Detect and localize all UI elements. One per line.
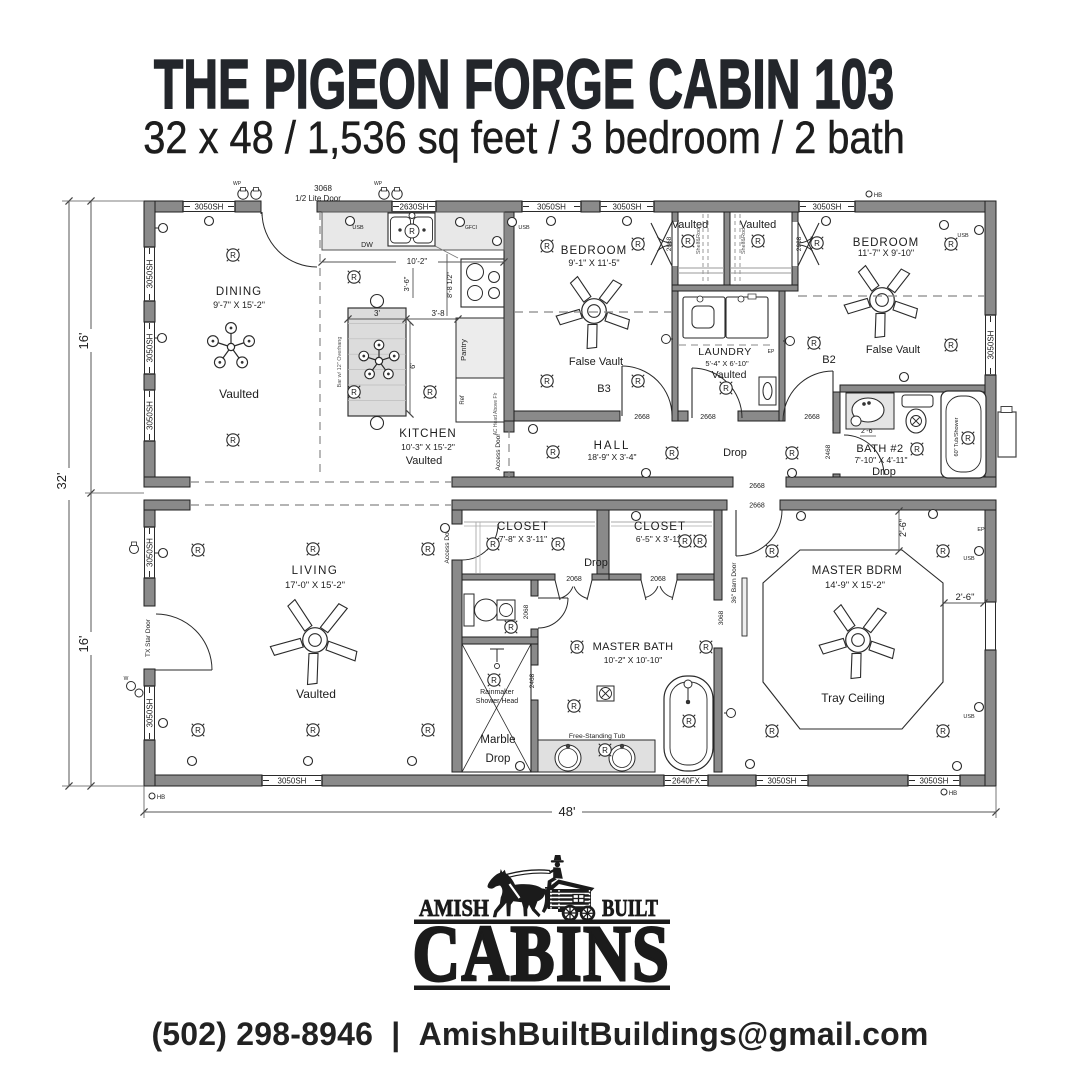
- svg-text:WP: WP: [233, 181, 242, 187]
- svg-text:BEDROOM: BEDROOM: [561, 245, 627, 257]
- svg-text:3050SH: 3050SH: [146, 401, 155, 430]
- svg-text:USB: USB: [957, 233, 969, 239]
- svg-text:W: W: [124, 676, 129, 682]
- svg-text:R: R: [814, 239, 820, 248]
- svg-text:R: R: [425, 545, 431, 554]
- svg-text:R: R: [574, 643, 580, 652]
- svg-text:R: R: [351, 388, 357, 397]
- svg-text:9'-7" X 15'-2": 9'-7" X 15'-2": [213, 300, 265, 310]
- svg-text:GFCI: GFCI: [465, 225, 477, 231]
- svg-text:R: R: [550, 448, 556, 457]
- svg-text:False Vault: False Vault: [569, 356, 623, 368]
- svg-text:Vaulted: Vaulted: [406, 455, 443, 467]
- svg-text:R: R: [602, 746, 608, 755]
- svg-text:60" Tub/Shower: 60" Tub/Shower: [954, 417, 960, 456]
- svg-text:2668: 2668: [700, 414, 716, 421]
- svg-text:Vaulted: Vaulted: [712, 369, 747, 381]
- svg-text:3050SH: 3050SH: [987, 330, 996, 359]
- svg-text:CLOSET: CLOSET: [634, 521, 686, 533]
- svg-text:3050SH: 3050SH: [195, 203, 224, 212]
- svg-text:2668: 2668: [666, 236, 673, 251]
- svg-text:LAUNDRY: LAUNDRY: [698, 346, 752, 358]
- svg-text:R: R: [755, 237, 761, 246]
- svg-text:R: R: [310, 545, 316, 554]
- svg-text:Ref: Ref: [460, 395, 466, 405]
- svg-text:2668: 2668: [634, 414, 650, 421]
- svg-text:CABINS: CABINS: [413, 909, 671, 997]
- svg-text:USB: USB: [518, 225, 530, 231]
- svg-text:Rainmaker: Rainmaker: [480, 689, 515, 696]
- svg-text:Pantry: Pantry: [459, 339, 468, 361]
- svg-text:10'-3" X 15'-2": 10'-3" X 15'-2": [401, 442, 455, 452]
- svg-text:USB: USB: [352, 225, 364, 231]
- svg-text:R: R: [230, 251, 236, 260]
- svg-text:7'-8" X 3'-11": 7'-8" X 3'-11": [499, 534, 547, 544]
- svg-text:Drop: Drop: [584, 557, 608, 569]
- svg-text:2668: 2668: [749, 483, 765, 490]
- svg-text:Drop: Drop: [723, 447, 747, 459]
- svg-text:32': 32': [54, 473, 69, 490]
- svg-text:Access Door: Access Door: [495, 433, 502, 471]
- svg-text:2668: 2668: [804, 414, 820, 421]
- svg-text:CLOSET: CLOSET: [497, 521, 549, 533]
- svg-text:R: R: [230, 436, 236, 445]
- svg-text:Marble: Marble: [480, 734, 515, 746]
- svg-text:R: R: [940, 727, 946, 736]
- svg-text:R: R: [544, 377, 550, 386]
- svg-text:USB: USB: [963, 714, 975, 720]
- svg-text:R: R: [914, 445, 920, 454]
- svg-text:R: R: [195, 546, 201, 555]
- svg-text:Tray Ceiling: Tray Ceiling: [821, 691, 885, 705]
- svg-text:2468: 2468: [529, 673, 536, 688]
- svg-text:3'-8: 3'-8: [431, 309, 445, 318]
- svg-text:R: R: [351, 273, 357, 282]
- svg-text:R: R: [682, 537, 688, 546]
- svg-text:Vaulted: Vaulted: [740, 219, 777, 231]
- svg-text:2468: 2468: [825, 444, 832, 459]
- svg-text:R: R: [703, 643, 709, 652]
- svg-text:HB: HB: [874, 193, 882, 199]
- svg-text:R: R: [769, 727, 775, 736]
- svg-text:9'-1" X 11'-5": 9'-1" X 11'-5": [568, 258, 619, 268]
- svg-text:LIVING: LIVING: [292, 565, 339, 577]
- svg-text:R: R: [635, 240, 641, 249]
- svg-text:3050SH: 3050SH: [768, 777, 797, 786]
- svg-text:1/2 Lite Door: 1/2 Lite Door: [295, 194, 341, 203]
- svg-text:False Vault: False Vault: [866, 344, 920, 356]
- svg-text:Shower Head: Shower Head: [476, 698, 519, 705]
- svg-text:2'-6": 2'-6": [898, 519, 908, 537]
- svg-text:R: R: [769, 547, 775, 556]
- svg-text:Vaulted: Vaulted: [219, 387, 259, 401]
- svg-text:2668: 2668: [749, 503, 765, 510]
- svg-text:5'-4" X 6'-10": 5'-4" X 6'-10": [705, 359, 749, 368]
- svg-text:AC Head Above Flr: AC Head Above Flr: [493, 392, 499, 435]
- svg-text:R: R: [491, 676, 497, 685]
- svg-text:8'-8 1/2": 8'-8 1/2": [447, 272, 454, 298]
- svg-text:Drop: Drop: [486, 753, 511, 765]
- svg-text:3050SH: 3050SH: [278, 777, 307, 786]
- svg-text:R: R: [697, 537, 703, 546]
- svg-text:R: R: [635, 377, 641, 386]
- svg-text:14'-9" X 15'-2": 14'-9" X 15'-2": [825, 580, 885, 591]
- svg-text:TX Star Door: TX Star Door: [145, 618, 152, 657]
- svg-text:HB: HB: [157, 795, 165, 801]
- svg-text:R: R: [544, 242, 550, 251]
- svg-text:3': 3': [374, 309, 380, 318]
- svg-text:R: R: [425, 726, 431, 735]
- svg-text:EP: EP: [977, 527, 985, 533]
- svg-text:HALL: HALL: [594, 440, 631, 452]
- svg-text:Shelf&Rod: Shelf&Rod: [741, 228, 747, 254]
- svg-text:R: R: [940, 547, 946, 556]
- svg-text:3050SH: 3050SH: [146, 333, 155, 362]
- svg-text:Free-Standing Tub: Free-Standing Tub: [569, 733, 626, 740]
- svg-text:B3: B3: [597, 383, 610, 395]
- svg-text:R: R: [965, 434, 971, 443]
- svg-text:R: R: [555, 540, 561, 549]
- svg-text:R: R: [948, 240, 954, 249]
- svg-text:Shelf&Rod: Shelf&Rod: [696, 228, 702, 254]
- svg-text:3050SH: 3050SH: [537, 203, 566, 212]
- svg-text:2630SH: 2630SH: [400, 203, 429, 212]
- svg-text:16': 16': [76, 333, 91, 350]
- svg-text:WP: WP: [374, 181, 383, 187]
- svg-text:R: R: [669, 449, 675, 458]
- svg-text:2640FX: 2640FX: [672, 777, 701, 786]
- svg-text:R: R: [571, 702, 577, 711]
- svg-text:11'-7" X 9'-10": 11'-7" X 9'-10": [858, 248, 914, 258]
- svg-text:7'-10" X 4'-11": 7'-10" X 4'-11": [854, 455, 907, 465]
- svg-text:USB: USB: [963, 556, 975, 562]
- svg-text:17'-0" X 15'-2": 17'-0" X 15'-2": [285, 580, 345, 591]
- svg-text:R: R: [789, 449, 795, 458]
- svg-text:DW: DW: [361, 242, 373, 249]
- svg-text:DINING: DINING: [216, 286, 262, 298]
- svg-text:Drop: Drop: [872, 466, 896, 478]
- svg-text:R: R: [686, 717, 692, 726]
- svg-text:BATH #2: BATH #2: [856, 443, 903, 455]
- svg-text:3050SH: 3050SH: [613, 203, 642, 212]
- svg-text:R: R: [195, 726, 201, 735]
- svg-text:16': 16': [76, 636, 91, 653]
- svg-text:R: R: [508, 623, 514, 632]
- svg-text:6'-5" X 3'-11": 6'-5" X 3'-11": [636, 534, 684, 544]
- svg-text:6': 6': [408, 363, 417, 369]
- svg-text:MASTER BATH: MASTER BATH: [593, 641, 674, 653]
- svg-text:Bar w/ 12" Overhang: Bar w/ 12" Overhang: [337, 337, 343, 388]
- svg-text:3'-6": 3'-6": [402, 276, 411, 291]
- svg-text:10'-2": 10'-2": [407, 257, 428, 266]
- svg-text:3050SH: 3050SH: [813, 203, 842, 212]
- svg-text:2'-6": 2'-6": [956, 592, 975, 603]
- svg-text:HB: HB: [949, 791, 957, 797]
- svg-text:Vaulted: Vaulted: [672, 219, 709, 231]
- svg-text:R: R: [490, 540, 496, 549]
- svg-text:3050SH: 3050SH: [146, 698, 155, 727]
- svg-text:3050SH: 3050SH: [920, 777, 949, 786]
- svg-text:B2: B2: [822, 354, 835, 366]
- svg-text:MASTER BDRM: MASTER BDRM: [812, 565, 902, 577]
- svg-text:3050SH: 3050SH: [146, 259, 155, 288]
- svg-text:R: R: [723, 384, 729, 393]
- svg-text:18'-9" X 3'-4": 18'-9" X 3'-4": [588, 452, 637, 462]
- svg-text:EP: EP: [768, 349, 775, 355]
- svg-text:3050SH: 3050SH: [146, 538, 155, 567]
- svg-text:R: R: [409, 227, 415, 236]
- svg-text:KITCHEN: KITCHEN: [399, 428, 456, 440]
- svg-text:2068: 2068: [650, 576, 666, 583]
- svg-text:3068: 3068: [718, 610, 725, 625]
- svg-text:2068: 2068: [523, 604, 530, 619]
- svg-text:48': 48': [559, 804, 576, 819]
- svg-text:R: R: [427, 388, 433, 397]
- svg-text:R: R: [310, 726, 316, 735]
- svg-text:36" Barn Door: 36" Barn Door: [731, 562, 738, 604]
- svg-text:3068: 3068: [314, 184, 332, 193]
- svg-text:R: R: [948, 341, 954, 350]
- svg-text:Vaulted: Vaulted: [296, 687, 336, 701]
- svg-text:10'-2" X 10'-10": 10'-2" X 10'-10": [604, 655, 662, 665]
- svg-text:2668: 2668: [796, 236, 803, 251]
- svg-text:R: R: [811, 339, 817, 348]
- svg-text:R: R: [685, 237, 691, 246]
- svg-text:2068: 2068: [566, 576, 582, 583]
